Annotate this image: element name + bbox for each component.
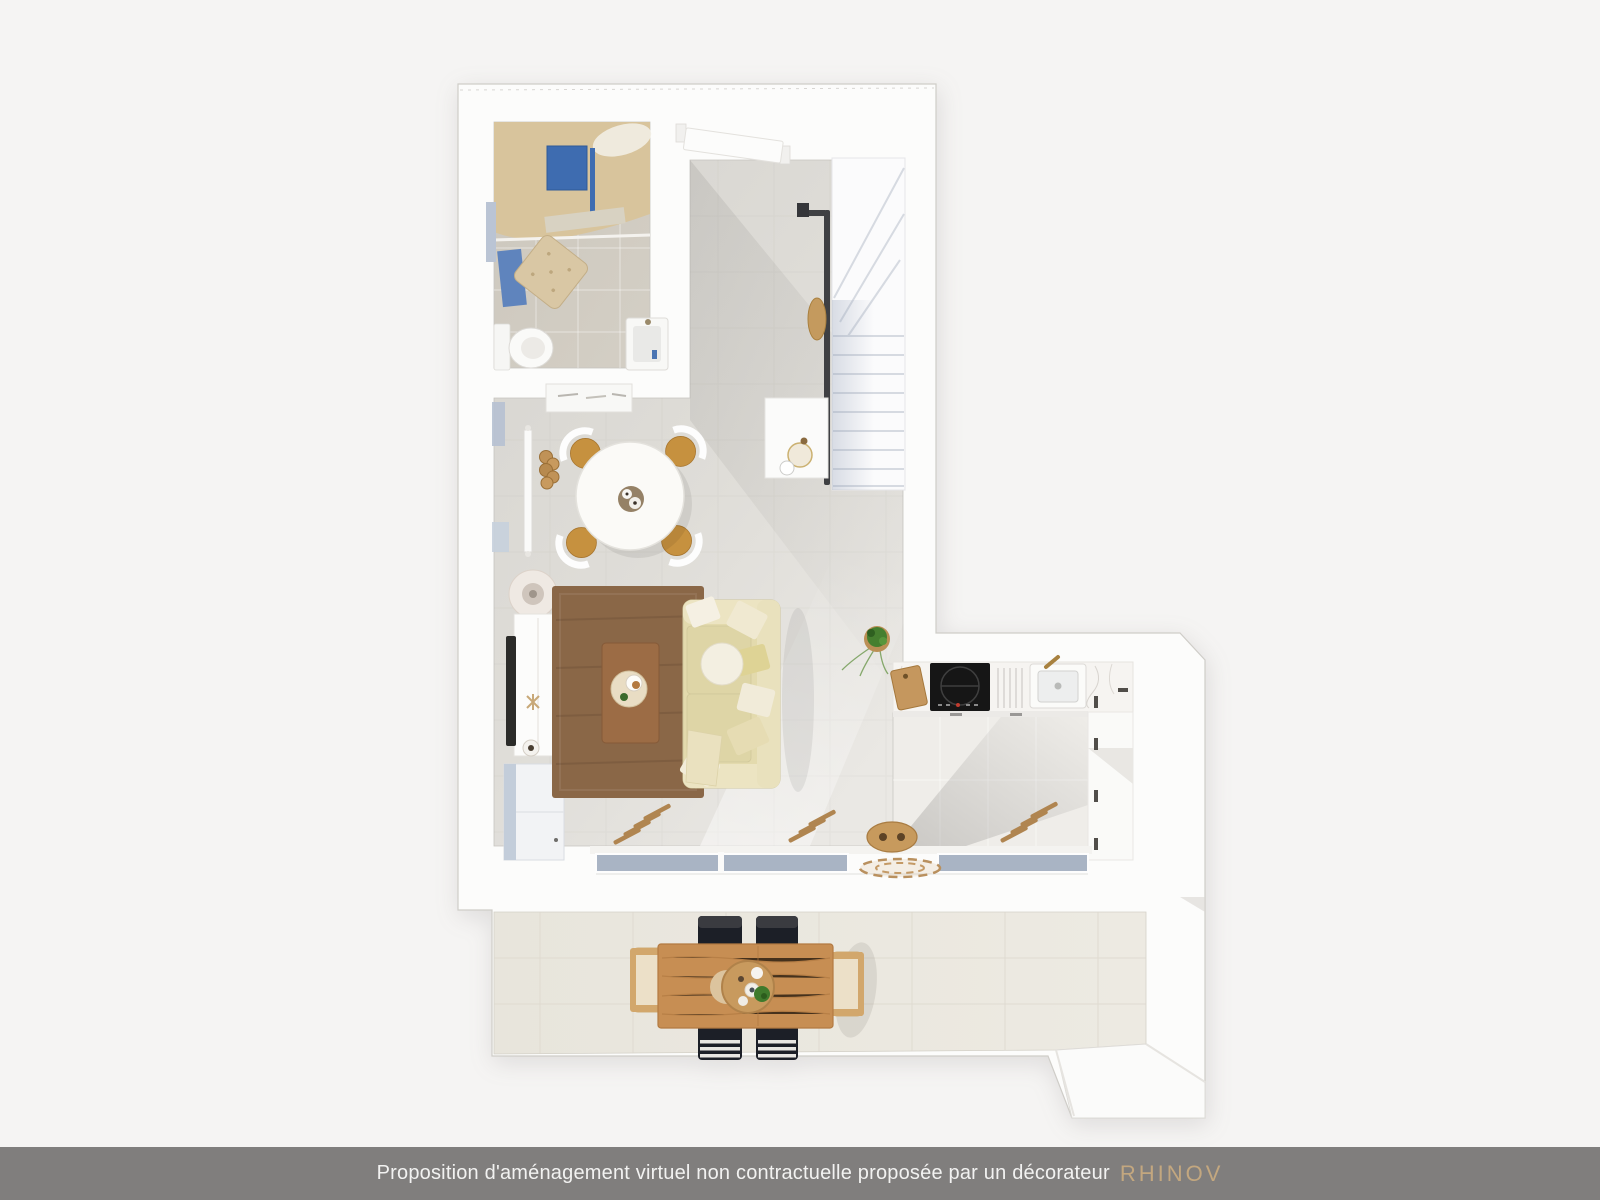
floorplan-render bbox=[0, 0, 1600, 1200]
kitchen-sink bbox=[1030, 657, 1086, 708]
outdoor-chair-wood bbox=[832, 952, 864, 1016]
tv bbox=[506, 636, 516, 746]
bathroom-window-sill bbox=[486, 202, 496, 262]
induction-hob bbox=[930, 663, 990, 711]
jute-rug bbox=[860, 859, 940, 877]
brand-rhinov: RHINOV bbox=[1120, 1161, 1224, 1187]
outdoor-chair-striped bbox=[698, 1024, 742, 1060]
round-pillow bbox=[701, 643, 743, 685]
radiator bbox=[524, 425, 532, 557]
washbasin bbox=[626, 318, 668, 370]
shower-column bbox=[590, 148, 595, 216]
under-stair-desk bbox=[765, 398, 828, 478]
window-sill bbox=[492, 522, 509, 552]
stair-shading bbox=[832, 300, 874, 490]
coffee-table bbox=[602, 643, 659, 743]
sofa-shadow bbox=[782, 608, 814, 792]
footer-bar: Proposition d'aménagement virtuel non co… bbox=[0, 1147, 1600, 1200]
newel-post bbox=[797, 203, 809, 217]
blanket bbox=[686, 730, 722, 786]
tall-cabinets bbox=[1088, 688, 1133, 860]
sliding-bay-window bbox=[590, 846, 1092, 874]
footer-disclaimer: Proposition d'aménagement virtuel non co… bbox=[377, 1162, 1110, 1185]
glass-pane bbox=[938, 854, 1088, 872]
outdoor-chair-striped bbox=[756, 1024, 798, 1060]
cup bbox=[780, 461, 794, 475]
page: Proposition d'aménagement virtuel non co… bbox=[0, 0, 1600, 1200]
shower-panel bbox=[547, 146, 587, 190]
kitchen-counter bbox=[893, 662, 1133, 717]
window-sill bbox=[492, 402, 505, 446]
floor-lamp bbox=[509, 570, 557, 618]
table-centerpiece bbox=[618, 486, 644, 512]
wall-console bbox=[546, 384, 632, 412]
kettle-knob bbox=[801, 438, 808, 445]
sofa bbox=[679, 596, 780, 788]
bench bbox=[867, 822, 917, 852]
wall-coat-hook bbox=[808, 298, 826, 340]
